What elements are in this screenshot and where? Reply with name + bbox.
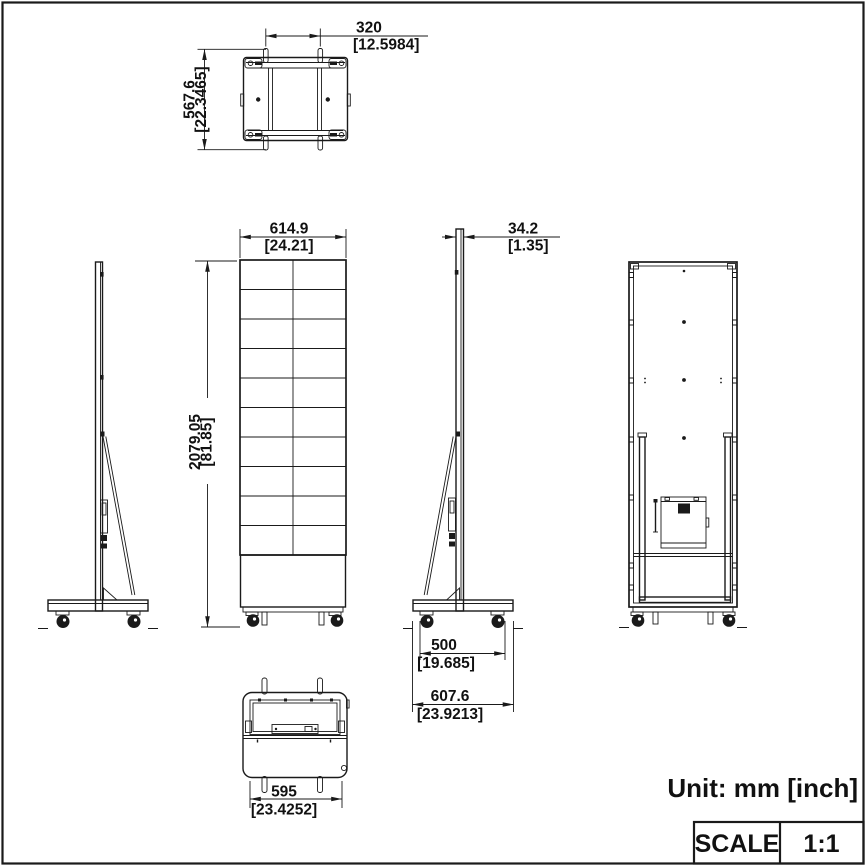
dim-base-inner-depth-mm: 500 <box>431 637 457 654</box>
dim-base-depth-inch: [23.9213] <box>417 706 483 723</box>
dim-top-depth: 567.6 [22.3465] <box>182 49 267 149</box>
dim-overall-height: 2079.05 [81.85] <box>187 261 240 627</box>
rear-view <box>619 262 747 628</box>
dim-top-width-inch: [12.5984] <box>353 37 419 54</box>
dim-base-width-mm: 595 <box>271 784 297 801</box>
dim-panel-thickness-inch: [1.35] <box>508 238 549 255</box>
top-view <box>241 49 351 151</box>
dim-screen-width-inch: [24.21] <box>264 238 313 255</box>
dim-screen-width-mm: 614.9 <box>270 221 309 238</box>
left-side-view <box>38 262 158 629</box>
scale-value: 1:1 <box>803 830 839 858</box>
sheet-border <box>3 3 864 864</box>
bottom-view <box>243 678 349 793</box>
scale-block: SCALE 1:1 <box>694 822 864 864</box>
unit-note: Unit: mm [inch] <box>667 773 858 803</box>
dim-base-depth-mm: 607.6 <box>431 688 470 705</box>
front-view <box>240 260 346 627</box>
scale-label: SCALE <box>695 830 780 858</box>
dim-base-inner-depth-inch: [19.685] <box>417 655 475 672</box>
right-side-view <box>403 229 523 629</box>
dim-top-depth-inch: [22.3465] <box>193 66 210 132</box>
dim-overall-height-inch: [81.85] <box>199 417 216 466</box>
dim-base-width: 595 [23.4252] <box>250 781 342 819</box>
dim-panel-thickness-mm: 34.2 <box>508 221 538 238</box>
drawing-page: 320 [12.5984] 567.6 [22.3465] <box>0 0 866 866</box>
dim-panel-thickness: 34.2 [1.35] <box>442 221 560 255</box>
dim-base-depth: 607.6 [23.9213] <box>413 621 514 723</box>
dim-base-width-inch: [23.4252] <box>251 802 317 819</box>
dim-top-width: 320 [12.5984] <box>266 20 428 54</box>
dim-screen-width: 614.9 [24.21] <box>240 221 346 259</box>
dim-base-inner-depth: 500 [19.685] <box>417 621 505 672</box>
dim-top-width-mm: 320 <box>356 20 382 37</box>
technical-drawing: 320 [12.5984] 567.6 [22.3465] <box>0 0 866 866</box>
